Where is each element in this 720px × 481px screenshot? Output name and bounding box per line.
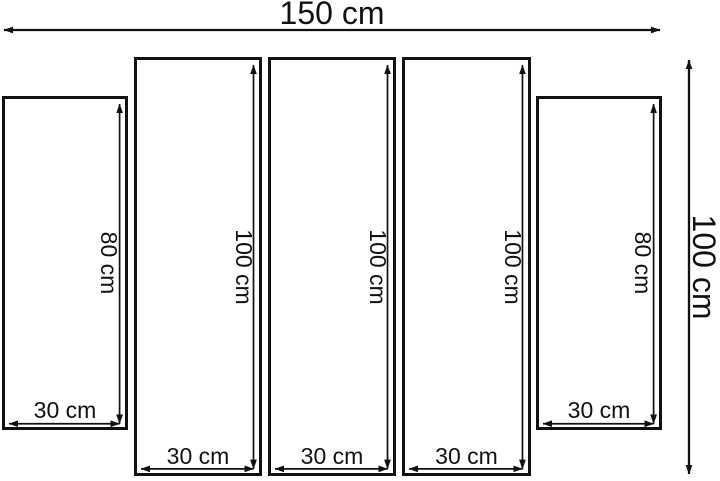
panel-4-height-label: 100 cm <box>501 229 524 304</box>
five-panel-canvas-size-diagram: 150 cm 100 cm 80 cm 30 cm 100 cm 30 cm <box>0 0 720 481</box>
panel-1-width-label: 30 cm <box>34 399 97 422</box>
overall-height-label: 100 cm <box>688 215 720 320</box>
panel-2-width-label: 30 cm <box>167 445 230 468</box>
panel-3-height-label: 100 cm <box>366 229 389 304</box>
panel-1: 80 cm 30 cm <box>2 96 128 430</box>
overall-width-arrow-icon <box>0 22 664 38</box>
panel-2-height-label: 100 cm <box>232 229 255 304</box>
panel-4: 100 cm 30 cm <box>402 57 531 476</box>
panel-5-height-label: 80 cm <box>632 232 655 295</box>
panel-2: 100 cm 30 cm <box>134 57 262 476</box>
panel-1-height-label: 80 cm <box>98 232 121 295</box>
panel-5-width-label: 30 cm <box>568 399 631 422</box>
panel-3: 100 cm 30 cm <box>268 57 396 476</box>
panel-4-width-label: 30 cm <box>435 445 498 468</box>
panel-3-width-label: 30 cm <box>301 445 364 468</box>
overall-width-dimension: 150 cm <box>0 0 664 40</box>
panel-5: 80 cm 30 cm <box>536 96 662 430</box>
overall-height-dimension: 100 cm <box>672 57 720 477</box>
